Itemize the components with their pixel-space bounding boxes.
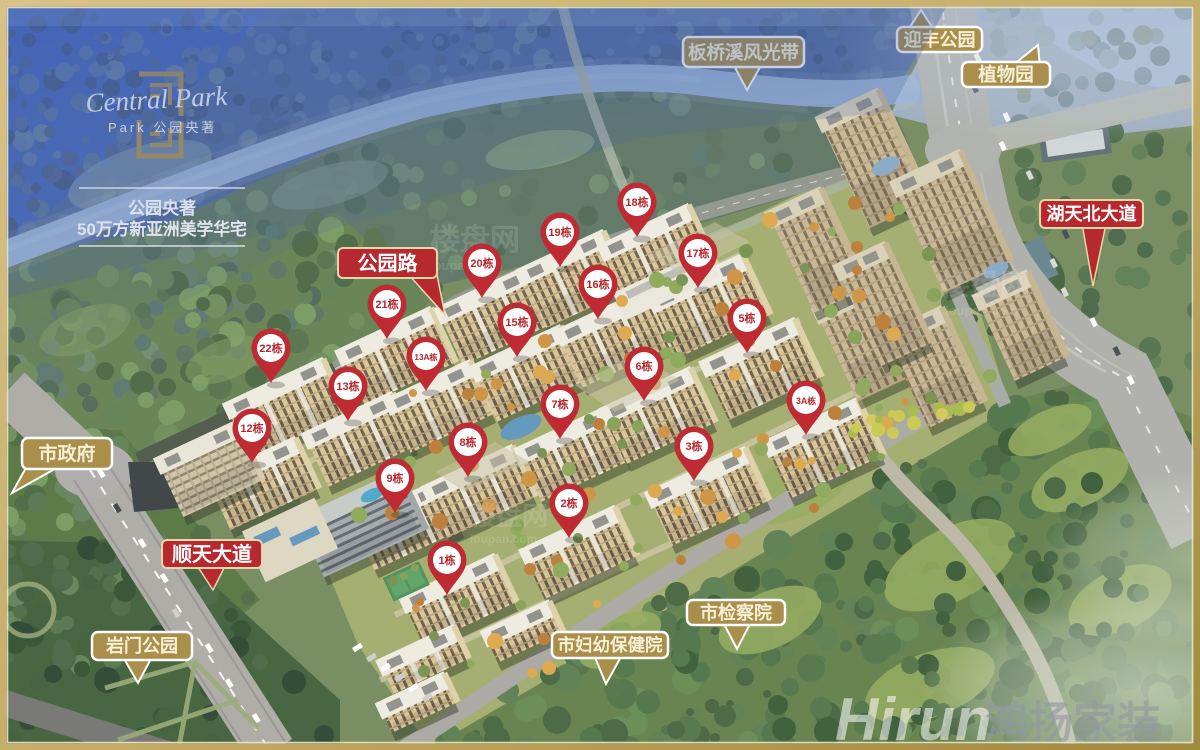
svg-text:3栋: 3栋 <box>685 439 702 453</box>
svg-text:19栋: 19栋 <box>548 225 571 239</box>
svg-text:12栋: 12栋 <box>240 421 263 435</box>
svg-text:17栋: 17栋 <box>686 246 709 260</box>
svg-text:9栋: 9栋 <box>386 471 403 485</box>
svg-text:20栋: 20栋 <box>470 256 493 270</box>
svg-text:loupan.com: loupan.com <box>470 532 537 546</box>
svg-text:7栋: 7栋 <box>551 397 568 411</box>
svg-text:市妇幼保健院: 市妇幼保健院 <box>558 635 663 655</box>
svg-text:13栋: 13栋 <box>336 379 359 393</box>
svg-text:15栋: 15栋 <box>505 315 528 329</box>
svg-text:公园路: 公园路 <box>358 251 419 275</box>
svg-text:植物园: 植物园 <box>978 64 1034 85</box>
svg-text:Hirun: Hirun <box>835 686 992 750</box>
svg-text:6栋: 6栋 <box>635 359 652 373</box>
svg-text:鸿扬家装: 鸿扬家装 <box>985 699 1161 748</box>
svg-text:市检察院: 市检察院 <box>700 602 772 623</box>
svg-text:岩门公园: 岩门公园 <box>105 635 178 656</box>
svg-text:loupan.com: loupan.com <box>945 303 1018 318</box>
svg-text:湖天北大道: 湖天北大道 <box>1047 203 1137 224</box>
svg-text:18栋: 18栋 <box>625 195 648 209</box>
svg-text:顺天大道: 顺天大道 <box>172 542 252 566</box>
svg-text:22栋: 22栋 <box>259 341 282 355</box>
svg-text:楼盘网: 楼盘网 <box>940 268 1030 302</box>
svg-text:1栋: 1栋 <box>438 553 455 567</box>
svg-text:5栋: 5栋 <box>738 311 755 325</box>
svg-text:2栋: 2栋 <box>560 496 577 510</box>
svg-text:市政府: 市政府 <box>38 442 95 465</box>
svg-text:21栋: 21栋 <box>375 297 398 311</box>
svg-text:楼盘网: 楼盘网 <box>470 501 548 531</box>
svg-text:16栋: 16栋 <box>586 277 609 291</box>
svg-text:3A栋: 3A栋 <box>796 395 816 406</box>
svg-text:13A栋: 13A栋 <box>414 352 438 362</box>
svg-text:8栋: 8栋 <box>459 435 476 449</box>
